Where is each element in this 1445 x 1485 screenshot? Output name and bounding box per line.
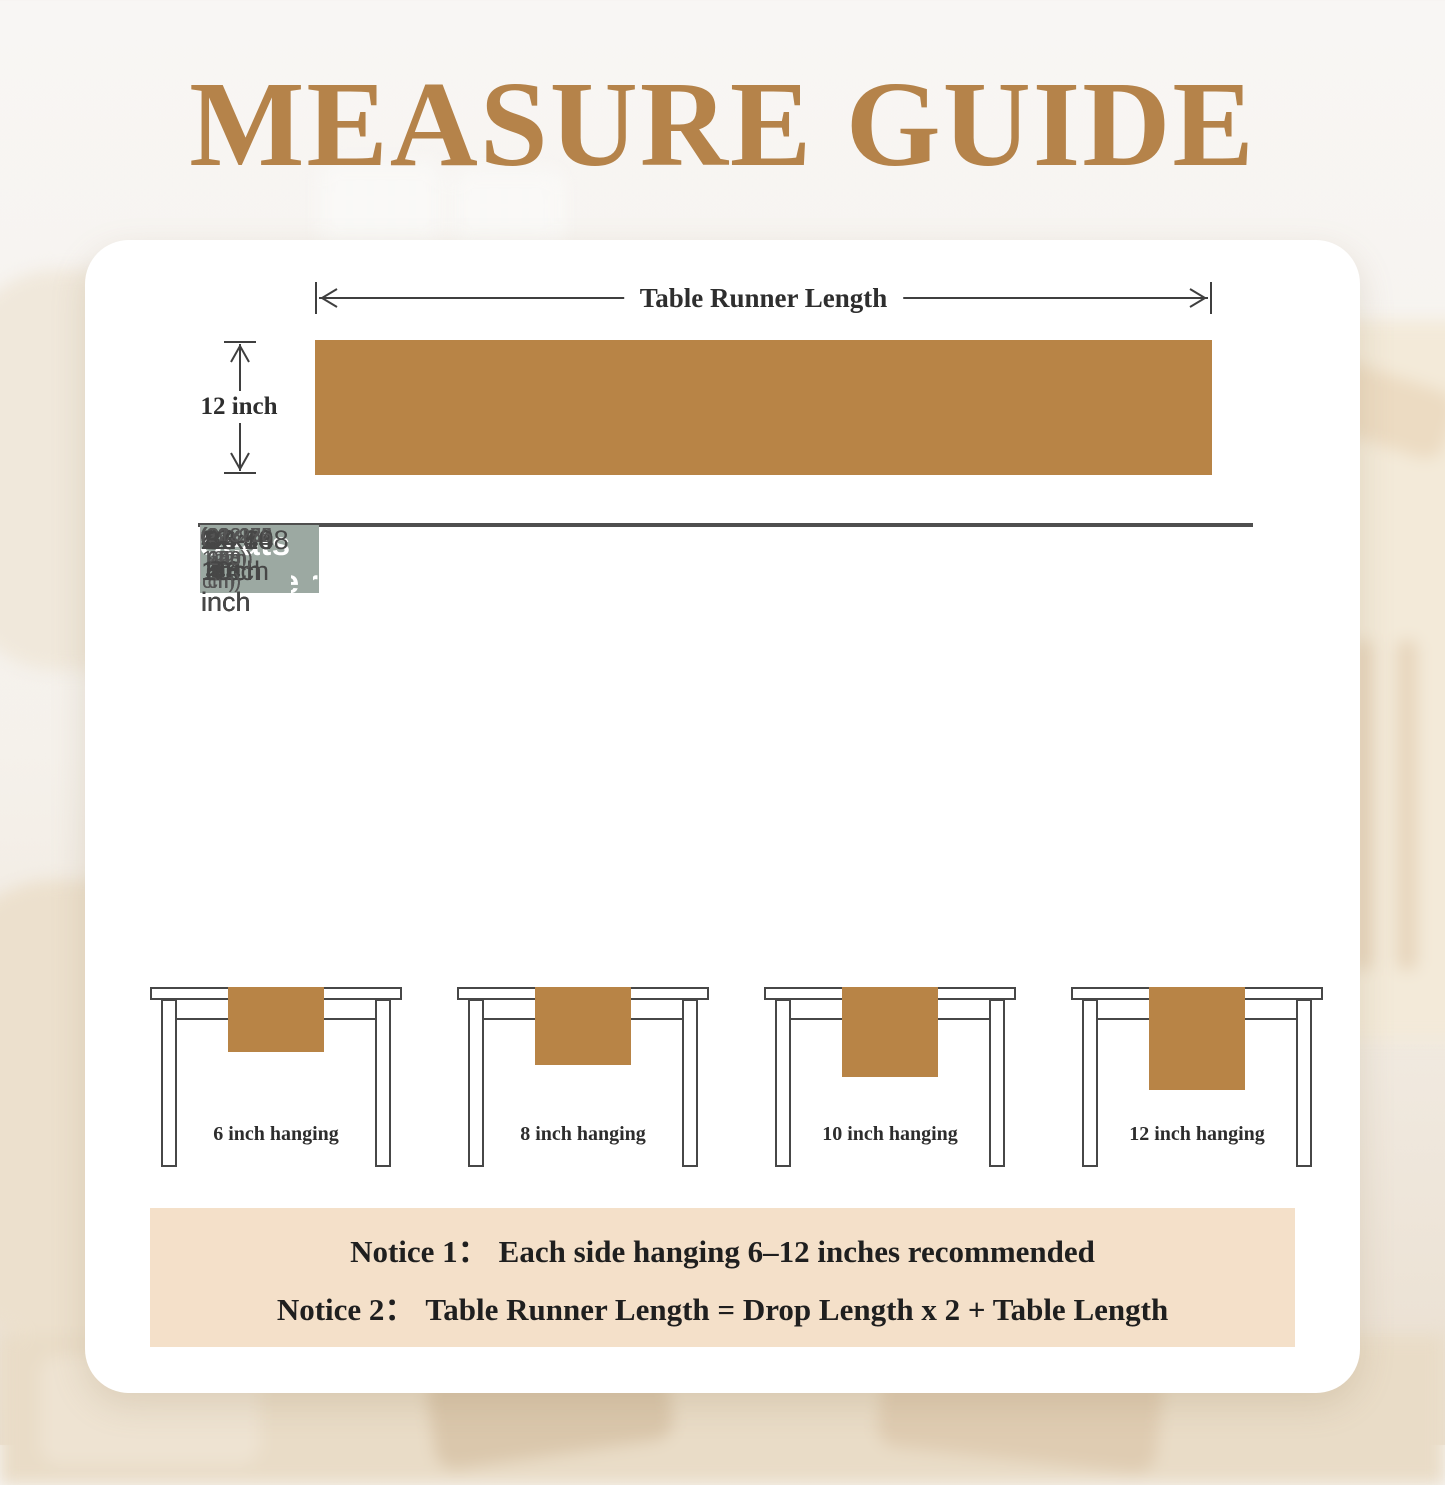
length-arrow-label: Table Runner Length bbox=[624, 282, 904, 314]
notice-2-text: Table Runner Length = Drop Length x 2 + … bbox=[425, 1292, 1168, 1327]
runner-drop bbox=[228, 987, 324, 1052]
size-table: Table Runner Size Fit Table Length Seats… bbox=[198, 523, 1253, 527]
figure-label: 6 inch hanging bbox=[150, 1123, 402, 1146]
length-dimension-arrow: Table Runner Length bbox=[315, 280, 1212, 316]
notice-panel: Notice 1：Each side hanging 6–12 inches r… bbox=[150, 1208, 1295, 1347]
notice-2-label: Notice 2： bbox=[277, 1292, 416, 1327]
page-title: MEASURE GUIDE bbox=[0, 64, 1445, 186]
figure-label: 12 inch hanging bbox=[1071, 1123, 1323, 1146]
figure-label: 10 inch hanging bbox=[764, 1123, 1016, 1146]
runner-drop bbox=[1149, 987, 1245, 1090]
measure-guide-card: Table Runner Length 12 inch Table Runner… bbox=[85, 240, 1360, 1393]
table-figure-6-inch: 6 inch hanging bbox=[150, 985, 402, 1171]
runner-drop bbox=[535, 987, 631, 1065]
notice-line-2: Notice 2：Table Runner Length = Drop Leng… bbox=[277, 1284, 1168, 1329]
table-figure-12-inch: 12 inch hanging bbox=[1071, 985, 1323, 1171]
table-figure-10-inch: 10 inch hanging bbox=[764, 985, 1016, 1171]
cell-seats: 8-10 bbox=[200, 525, 231, 582]
notice-1-label: Notice 1： bbox=[350, 1234, 489, 1269]
runner-drop bbox=[842, 987, 938, 1077]
notice-line-1: Notice 1：Each side hanging 6–12 inches r… bbox=[350, 1226, 1095, 1271]
table-figure-8-inch: 8 inch hanging bbox=[457, 985, 709, 1171]
notice-1-text: Each side hanging 6–12 inches recommende… bbox=[499, 1234, 1095, 1269]
table-runner-swatch bbox=[315, 340, 1212, 475]
chair-spindle bbox=[1397, 640, 1417, 970]
figure-label: 8 inch hanging bbox=[457, 1123, 709, 1146]
width-arrow-label: 12 inch bbox=[181, 391, 297, 423]
